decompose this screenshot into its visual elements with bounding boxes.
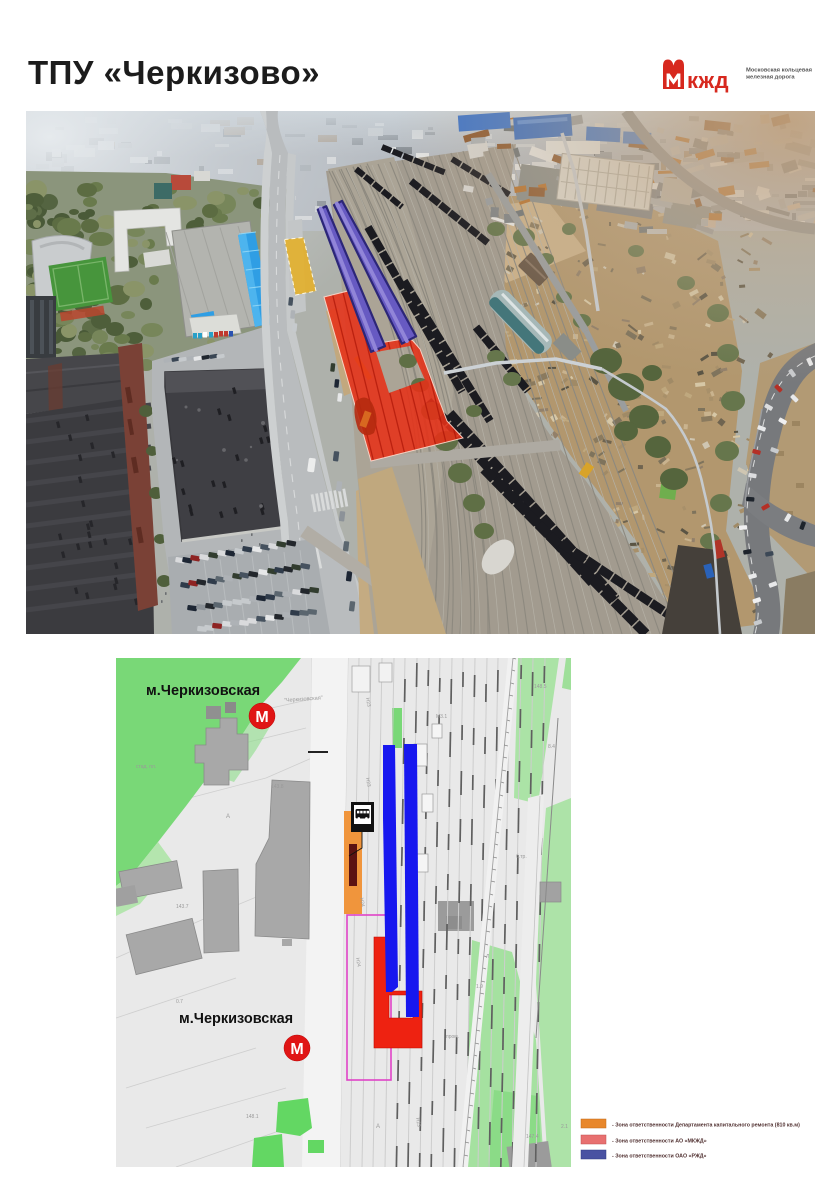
svg-text:А: А (376, 1124, 380, 1130)
svg-text:б.тр.: б.тр. (516, 854, 527, 860)
svg-text:кжд: кжд (687, 68, 729, 93)
svg-text:железная дорога: железная дорога (745, 75, 795, 81)
svg-text:стад. пл.: стад. пл. (136, 764, 156, 770)
svg-text:М: М (290, 1041, 303, 1058)
svg-text:- Зона ответственности ОАО «РЖ: - Зона ответственности ОАО «РЖД» (612, 1154, 707, 1160)
svg-text:148.1: 148.1 (246, 1114, 259, 1120)
svg-text:Московская кольцевая: Московская кольцевая (746, 68, 812, 74)
svg-text:- Зона ответственности АО «МКЖ: - Зона ответственности АО «МКЖД» (612, 1139, 707, 1145)
svg-text:М: М (255, 709, 268, 726)
svg-text:А: А (226, 814, 230, 820)
svg-text:143.8: 143.8 (271, 784, 284, 790)
svg-text:147.4: 147.4 (526, 1134, 539, 1140)
svg-text:- Зона ответственности Департа: - Зона ответственности Департамента капи… (612, 1123, 800, 1129)
svg-text:143.7: 143.7 (176, 904, 189, 910)
svg-text:1.9: 1.9 (476, 984, 483, 990)
svg-text:8.4: 8.4 (548, 744, 555, 750)
svg-text:Л: Л (486, 954, 489, 960)
svg-text:0.7: 0.7 (176, 999, 183, 1005)
svg-text:148.5: 148.5 (534, 684, 547, 690)
svg-text:м.Черкизовская: м.Черкизовская (146, 683, 260, 699)
svg-text:м.Черкизовская: м.Черкизовская (179, 1011, 293, 1027)
svg-text:М3.1: М3.1 (436, 714, 447, 720)
svg-text:пром.: пром. (446, 1034, 459, 1040)
svg-text:2.1: 2.1 (561, 1124, 568, 1130)
